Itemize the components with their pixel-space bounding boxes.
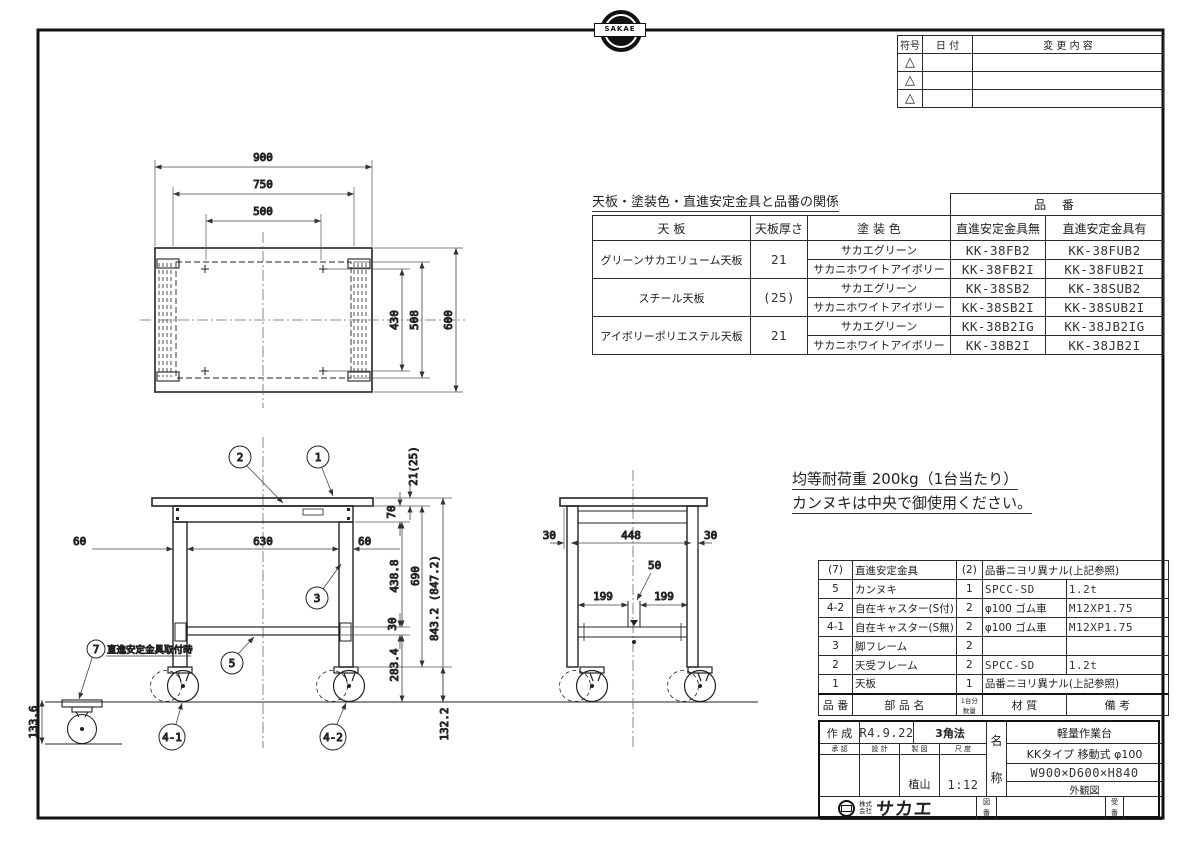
- parts-header-material: 材 質: [982, 694, 1066, 716]
- dim-front-21-25: 21(25): [407, 446, 420, 486]
- part-no: 3: [819, 637, 853, 656]
- parts-row: 3 脚フレーム 2: [819, 637, 1169, 656]
- dim-front-60r: 60: [358, 535, 371, 548]
- spec-code-with: KK-38JB2IG: [1046, 317, 1164, 336]
- spec-code-with: KK-38SUB2: [1046, 279, 1164, 298]
- spec-color: サカニホワイトアイボリー: [808, 336, 951, 355]
- spec-color: サカエグリーン: [808, 317, 951, 336]
- projection-method: 3角法: [914, 722, 987, 744]
- balloon-3: 3: [314, 592, 321, 605]
- revision-marker-icon: △: [898, 90, 923, 108]
- dim-front-843-2: 843.2 (847.2): [428, 555, 441, 641]
- revision-change-cell: [973, 90, 1164, 108]
- dim-top-508: 508: [408, 310, 421, 330]
- top-view: 900 750 500 430 508 600: [140, 151, 465, 408]
- dim-front-60l: 60: [73, 535, 86, 548]
- created-label: 作 成: [820, 722, 860, 744]
- revision-marker-icon: △: [898, 72, 923, 90]
- part-qty: 2: [956, 656, 982, 675]
- dim-top-500: 500: [253, 205, 273, 218]
- revision-col-date: 日 付: [923, 36, 973, 54]
- spec-top-name: グリーンサカエリューム天板: [593, 241, 751, 279]
- parts-row: 2 天受フレーム 2 SPCC-SD 1.2t: [819, 656, 1169, 675]
- title-block: 作 成 R4.9.22 3角法 承 認 設 計 製 図 尺 度 植山 1:12 …: [818, 720, 1160, 818]
- revision-col-change: 変 更 内 容: [973, 36, 1164, 54]
- drawing-number-value: [997, 797, 1106, 820]
- drawing-number-char1: 図: [983, 799, 990, 806]
- design-label: 設 計: [860, 744, 900, 755]
- part-remarks: [1066, 637, 1168, 656]
- approval-label: 承 認: [820, 744, 860, 755]
- spec-top-name: スチール天板: [593, 279, 751, 317]
- part-remarks: 1.2t: [1066, 656, 1168, 675]
- part-no: 5: [819, 580, 853, 599]
- part-remarks: M12XP1.75: [1066, 618, 1168, 637]
- part-no: 4-2: [819, 599, 853, 618]
- revision-date-cell: [923, 90, 973, 108]
- part-no: 1: [819, 675, 853, 694]
- balloon-7-note: 直進安定金具取付時: [107, 644, 193, 656]
- company-prefix: 株式 会社: [859, 801, 872, 815]
- part-qty: 1: [956, 675, 982, 694]
- approval-value: [820, 755, 860, 797]
- spec-code-without: KK-38B2I: [951, 336, 1046, 355]
- parts-header-remarks: 備 考: [1066, 694, 1168, 716]
- revision-date-cell: [923, 72, 973, 90]
- revision-table: 符号 日 付 変 更 内 容 △ △ △: [897, 35, 1164, 108]
- kannuki-usage-note: カンヌキは中央で御使用ください。: [792, 492, 1032, 513]
- dim-front-690: 690: [409, 566, 422, 586]
- company-prefix-line2: 会社: [859, 808, 872, 815]
- spec-header-part-no: 品 番: [951, 194, 1164, 216]
- product-size: W900×D600×H840: [1007, 764, 1162, 782]
- part-remarks: M12XP1.75: [1066, 599, 1168, 618]
- spec-thickness: (25): [751, 279, 808, 317]
- created-date: R4.9.22: [860, 722, 914, 744]
- part-material-remark: 品番ニヨリ異ナル(上記参照): [982, 675, 1168, 694]
- sakae-logo-wordmark: SAKAE: [594, 23, 646, 37]
- product-category: 軽量作業台: [1007, 722, 1162, 744]
- ref-number-char2: 番: [1111, 810, 1118, 817]
- sakae-mark-icon: [838, 800, 855, 817]
- spec-code-with: KK-38FUB2: [1046, 241, 1164, 260]
- part-no: 2: [819, 656, 853, 675]
- spec-header-without: 直進安定金具無: [951, 216, 1046, 241]
- spec-row: グリーンサカエリューム天板 21 サカエグリーン KK-38FB2 KK-38F…: [593, 241, 1164, 260]
- part-remarks: 1.2t: [1066, 580, 1168, 599]
- balloon-4-1: 4-1: [162, 731, 182, 744]
- revision-marker-icon: △: [898, 54, 923, 72]
- spec-header-thickness: 天板厚さ: [751, 216, 808, 241]
- scale-value: 1:12: [940, 755, 987, 797]
- dim-side-30l: 30: [543, 529, 556, 542]
- part-qty: (2): [956, 561, 982, 580]
- part-material: φ100 ゴム車: [982, 599, 1066, 618]
- parts-row: 4-2 自在キャスター(S付) 2 φ100 ゴム車 M12XP1.75: [819, 599, 1169, 618]
- spec-row: アイボリーポリエステル天板 21 サカエグリーン KK-38B2IG KK-38…: [593, 317, 1164, 336]
- parts-header-qty: 1台分 数量: [956, 694, 982, 716]
- dim-front-133-6: 133.6: [27, 705, 40, 738]
- company-logo-cell: 株式 会社 サカエ: [820, 797, 977, 820]
- load-capacity-note: 均等耐荷重 200kg（1台当たり）: [792, 468, 1018, 489]
- part-name: 天板: [853, 675, 957, 694]
- spec-code-without: KK-38SB2I: [951, 298, 1046, 317]
- spec-color: サカエグリーン: [808, 279, 951, 298]
- parts-list-table: (7) 直進安定金具 (2) 品番ニヨリ異ナル(上記参照) 5 カンヌキ 1 S…: [818, 560, 1169, 716]
- part-material: [982, 637, 1066, 656]
- revision-row: △: [898, 90, 1164, 108]
- spec-top-name: アイボリーポリエステル天板: [593, 317, 751, 355]
- spec-thickness: 21: [751, 241, 808, 279]
- dim-side-50: 50: [648, 559, 661, 572]
- parts-row: 1 天板 1 品番ニヨリ異ナル(上記参照): [819, 675, 1169, 694]
- revision-row: △: [898, 72, 1164, 90]
- load-capacity-text: 均等耐荷重 200kg（1台当たり）: [792, 470, 1018, 490]
- name-label-char2: 称: [990, 769, 1002, 786]
- spec-header-top: 天 板: [593, 216, 751, 241]
- drafter-name: 植山: [900, 755, 940, 797]
- part-name: カンヌキ: [853, 580, 957, 599]
- part-name: 脚フレーム: [853, 637, 957, 656]
- drawing-kind: 外観図: [1007, 782, 1162, 797]
- drafting-label: 製 図: [900, 744, 940, 755]
- front-view: 60 630 60 21(25) 70 438.8 690 30 283.4 8…: [27, 437, 758, 748]
- part-no: 4-1: [819, 618, 853, 637]
- part-name: 直進安定金具: [853, 561, 957, 580]
- dim-front-30: 30: [386, 617, 399, 630]
- spec-header-with: 直進安定金具有: [1046, 216, 1164, 241]
- dim-top-430: 430: [388, 310, 401, 330]
- sakae-top-logo: SAKAE: [598, 8, 642, 52]
- dim-side-199r: 199: [654, 590, 674, 603]
- dim-side-199l: 199: [593, 590, 613, 603]
- dim-side-30r: 30: [704, 529, 717, 542]
- revision-change-cell: [973, 54, 1164, 72]
- spec-code-without: KK-38FB2: [951, 241, 1046, 260]
- parts-row: 4-1 自在キャスター(S無) 2 φ100 ゴム車 M12XP1.75: [819, 618, 1169, 637]
- part-name: 自在キャスター(S無): [853, 618, 957, 637]
- name-label-char1: 名: [990, 732, 1002, 749]
- balloon-4-2: 4-2: [323, 731, 343, 744]
- spec-color: サカエグリーン: [808, 241, 951, 260]
- spec-code-without: KK-38SB2: [951, 279, 1046, 298]
- balloon-7: 7: [93, 643, 100, 656]
- part-material: SPCC-SD: [982, 656, 1066, 675]
- dim-front-630: 630: [253, 535, 273, 548]
- part-qty: 1: [956, 580, 982, 599]
- spec-code-without: KK-38B2IG: [951, 317, 1046, 336]
- part-name: 自在キャスター(S付): [853, 599, 957, 618]
- balloon-5: 5: [229, 657, 236, 670]
- spec-thickness: 21: [751, 317, 808, 355]
- part-no: (7): [819, 561, 853, 580]
- parts-header-name: 部 品 名: [853, 694, 957, 716]
- balloon-callouts: 2 1 3 5 7 4-1 4-2 直進安定金具取付時: [79, 446, 346, 750]
- part-name: 天受フレーム: [853, 656, 957, 675]
- spec-code-with: KK-38JB2I: [1046, 336, 1164, 355]
- revision-col-symbol: 符号: [898, 36, 923, 54]
- revision-change-cell: [973, 72, 1164, 90]
- company-name: サカエ: [875, 797, 935, 820]
- dim-top-600: 600: [442, 310, 455, 330]
- part-qty: 2: [956, 637, 982, 656]
- parts-header-qty-line2: 数量: [957, 705, 982, 715]
- revision-row: △: [898, 54, 1164, 72]
- design-value: [860, 755, 900, 797]
- dim-side-448: 448: [621, 529, 641, 542]
- ref-number-value: [1124, 797, 1162, 820]
- product-type: KKタイプ 移動式 φ100: [1007, 744, 1162, 764]
- side-view: 30 448 30 50 199 199: [543, 470, 718, 748]
- name-label: 名 称: [987, 722, 1007, 797]
- dim-top-900: 900: [253, 151, 273, 164]
- parts-row: 5 カンヌキ 1 SPCC-SD 1.2t: [819, 580, 1169, 599]
- ref-number-label: 受 番: [1106, 797, 1124, 820]
- kannuki-usage-text: カンヌキは中央で御使用ください。: [792, 494, 1032, 514]
- dim-front-70: 70: [385, 505, 398, 518]
- drawing-number-char2: 番: [983, 810, 990, 817]
- parts-row: (7) 直進安定金具 (2) 品番ニヨリ異ナル(上記参照): [819, 561, 1169, 580]
- part-qty: 2: [956, 618, 982, 637]
- spec-color: サカニホワイトアイボリー: [808, 260, 951, 279]
- spec-row: スチール天板 (25) サカエグリーン KK-38SB2 KK-38SUB2: [593, 279, 1164, 298]
- spec-code-without: KK-38FB2I: [951, 260, 1046, 279]
- balloon-2: 2: [237, 451, 244, 464]
- spec-color: サカニホワイトアイボリー: [808, 298, 951, 317]
- revision-date-cell: [923, 54, 973, 72]
- spec-code-with: KK-38SUB2I: [1046, 298, 1164, 317]
- spec-void-cell: [593, 194, 951, 216]
- parts-header-qty-line1: 1台分: [957, 695, 982, 705]
- parts-header-no: 品 番: [819, 694, 853, 716]
- ref-number-char1: 受: [1111, 799, 1118, 806]
- scale-label: 尺 度: [940, 744, 987, 755]
- spec-table: 品 番 天 板 天板厚さ 塗 装 色 直進安定金具無 直進安定金具有 グリーンサ…: [592, 193, 1164, 355]
- dim-top-750: 750: [253, 178, 273, 191]
- part-qty: 2: [956, 599, 982, 618]
- dim-front-438-8: 438.8: [388, 559, 401, 592]
- drawing-sheet: 900 750 500 430 508 600: [0, 0, 1200, 849]
- part-material-remark: 品番ニヨリ異ナル(上記参照): [982, 561, 1168, 580]
- spec-header-color: 塗 装 色: [808, 216, 951, 241]
- dim-front-283-4: 283.4: [388, 648, 401, 681]
- part-material: SPCC-SD: [982, 580, 1066, 599]
- drawing-number-label: 図 番: [977, 797, 997, 820]
- spec-code-with: KK-38FUB2I: [1046, 260, 1164, 279]
- part-material: φ100 ゴム車: [982, 618, 1066, 637]
- balloon-1: 1: [315, 451, 322, 464]
- dim-front-132-2: 132.2: [438, 707, 451, 740]
